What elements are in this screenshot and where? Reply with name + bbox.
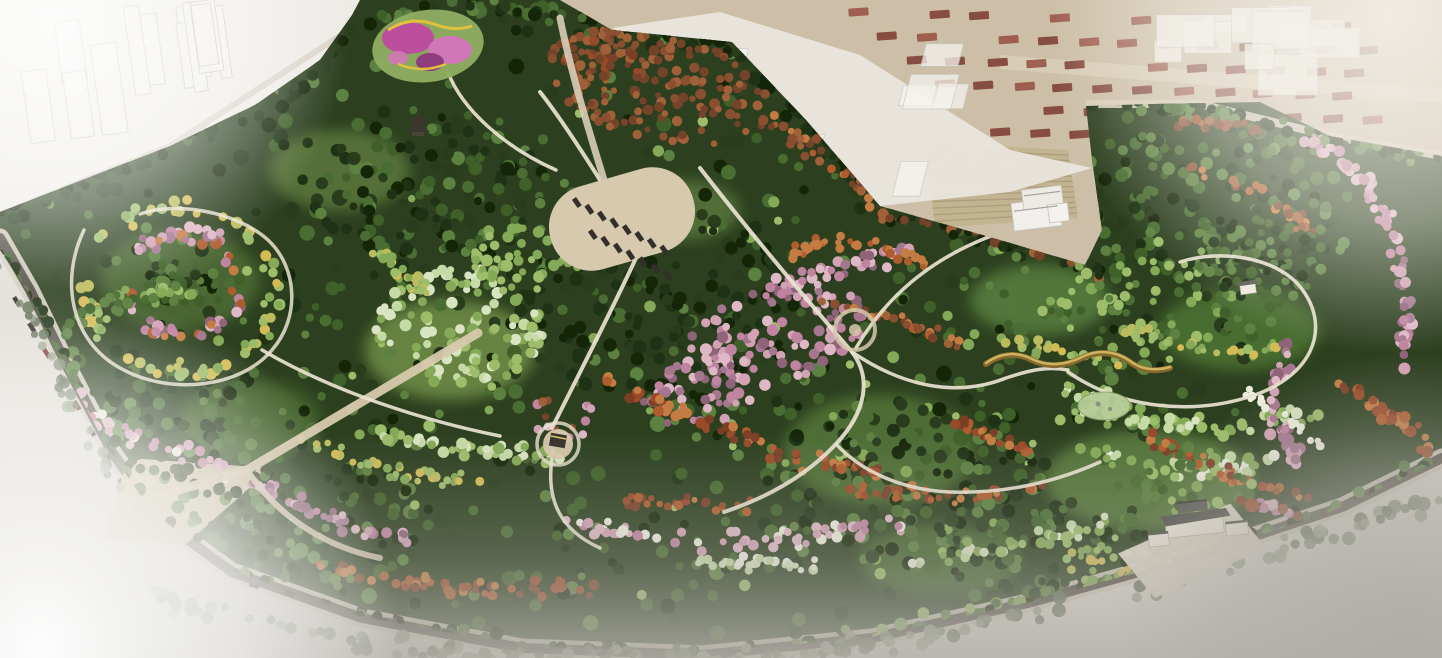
rock-mound (1078, 392, 1130, 420)
aerial-scene-canvas (0, 0, 1442, 658)
park-masterplan-rendering (0, 0, 1442, 658)
